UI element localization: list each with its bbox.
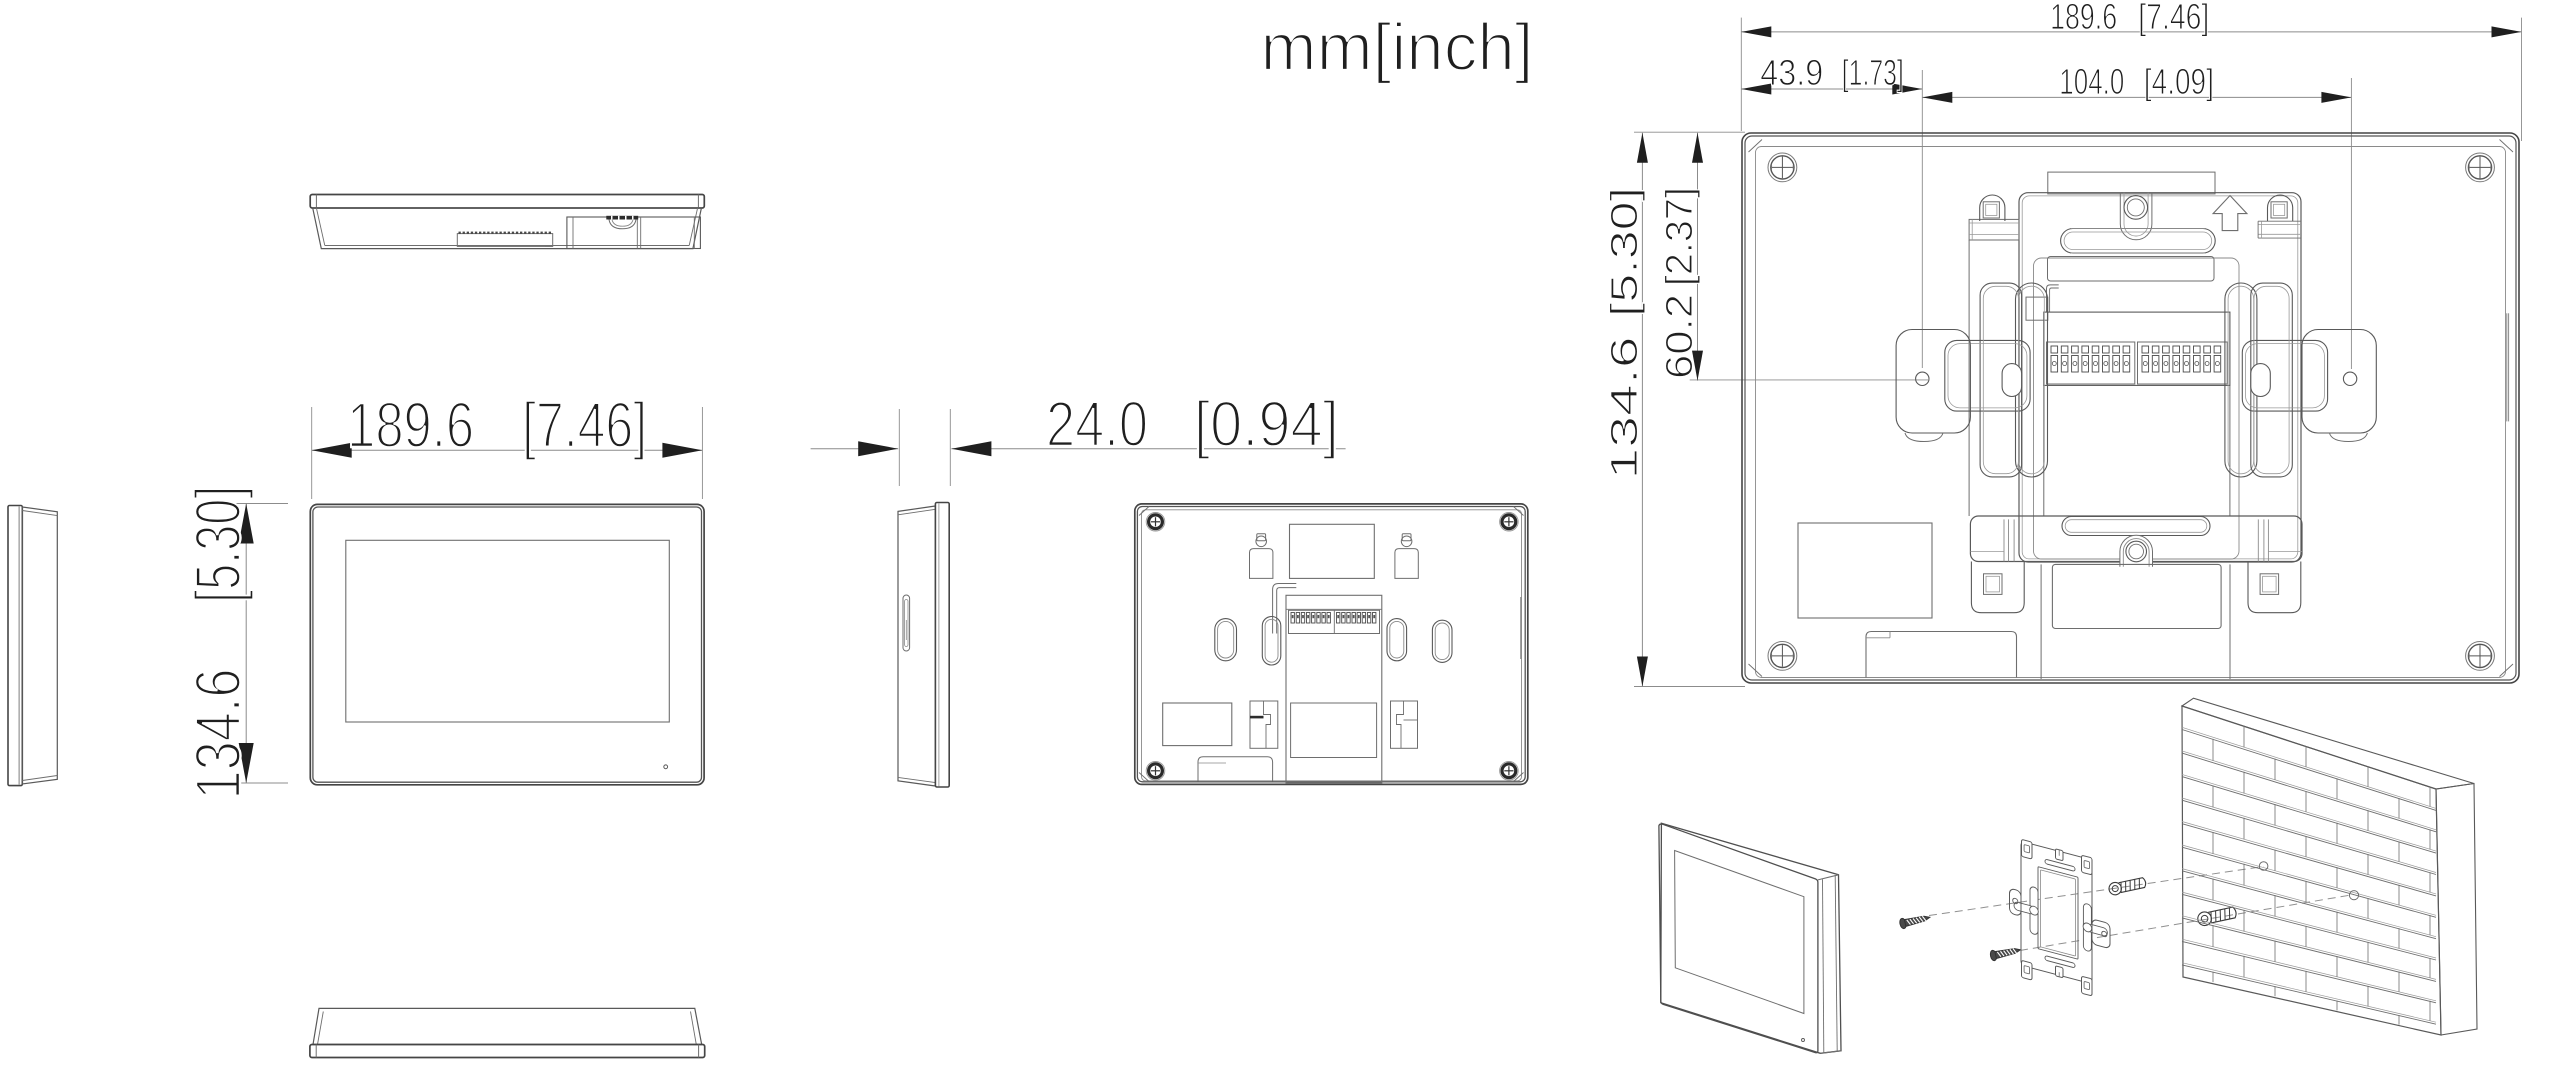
svg-text:134.6: 134.6 (1604, 337, 1646, 480)
svg-text:[2.37]: [2.37] (1659, 187, 1701, 286)
svg-text:[7.46]: [7.46] (2138, 0, 2209, 37)
svg-text:189.6: 189.6 (2050, 0, 2117, 37)
svg-text:mm[inch]: mm[inch] (1261, 10, 1534, 85)
svg-text:134.6: 134.6 (182, 669, 254, 800)
svg-text:[7.46]: [7.46] (522, 389, 647, 461)
svg-text:[5.30]: [5.30] (182, 486, 254, 603)
svg-text:24.0: 24.0 (1046, 388, 1148, 460)
svg-text:60.2: 60.2 (1659, 294, 1701, 379)
svg-text:[0.94]: [0.94] (1194, 388, 1339, 460)
svg-text:189.6: 189.6 (347, 389, 474, 461)
svg-text:[4.09]: [4.09] (2144, 61, 2214, 102)
svg-text:43.9: 43.9 (1760, 52, 1823, 93)
svg-text:[5.30]: [5.30] (1604, 187, 1646, 317)
svg-text:[1.73]: [1.73] (1842, 52, 1904, 93)
svg-text:104.0: 104.0 (2059, 61, 2124, 102)
